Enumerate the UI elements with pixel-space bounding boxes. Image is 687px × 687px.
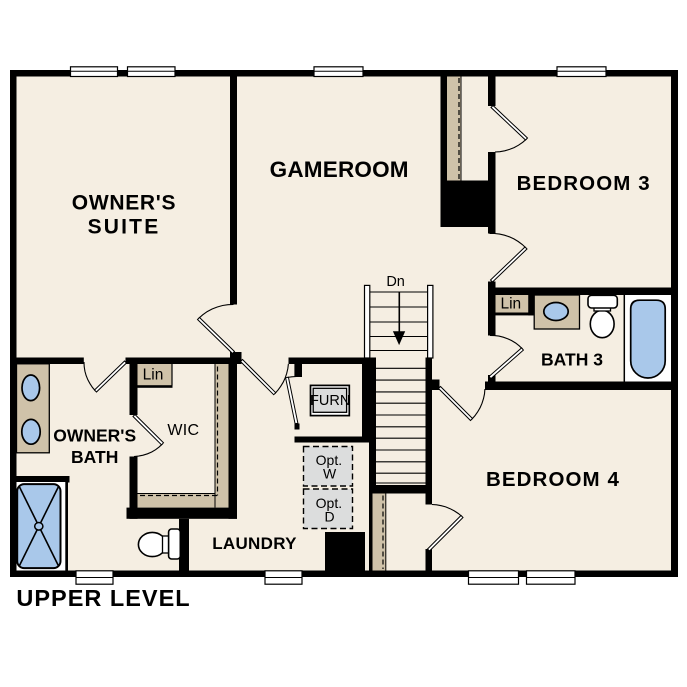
svg-text:SUITE: SUITE bbox=[88, 215, 161, 238]
svg-text:OWNER'S: OWNER'S bbox=[72, 192, 176, 215]
svg-text:D: D bbox=[325, 509, 335, 525]
svg-text:Dn: Dn bbox=[386, 274, 405, 290]
svg-text:GAMEROOM: GAMEROOM bbox=[270, 157, 409, 182]
svg-text:UPPER LEVEL: UPPER LEVEL bbox=[16, 585, 190, 611]
svg-text:FURN: FURN bbox=[310, 393, 350, 409]
svg-text:OWNER'S: OWNER'S bbox=[53, 425, 136, 445]
svg-text:BEDROOM 4: BEDROOM 4 bbox=[486, 468, 620, 491]
svg-text:Lin: Lin bbox=[143, 367, 164, 384]
svg-text:BATH 3: BATH 3 bbox=[541, 349, 603, 369]
svg-text:LAUNDRY: LAUNDRY bbox=[212, 534, 297, 553]
svg-text:WIC: WIC bbox=[167, 422, 199, 439]
svg-text:BEDROOM 3: BEDROOM 3 bbox=[517, 172, 651, 195]
svg-text:Lin: Lin bbox=[500, 296, 521, 313]
svg-text:W: W bbox=[323, 466, 337, 482]
svg-text:BATH: BATH bbox=[71, 447, 118, 467]
